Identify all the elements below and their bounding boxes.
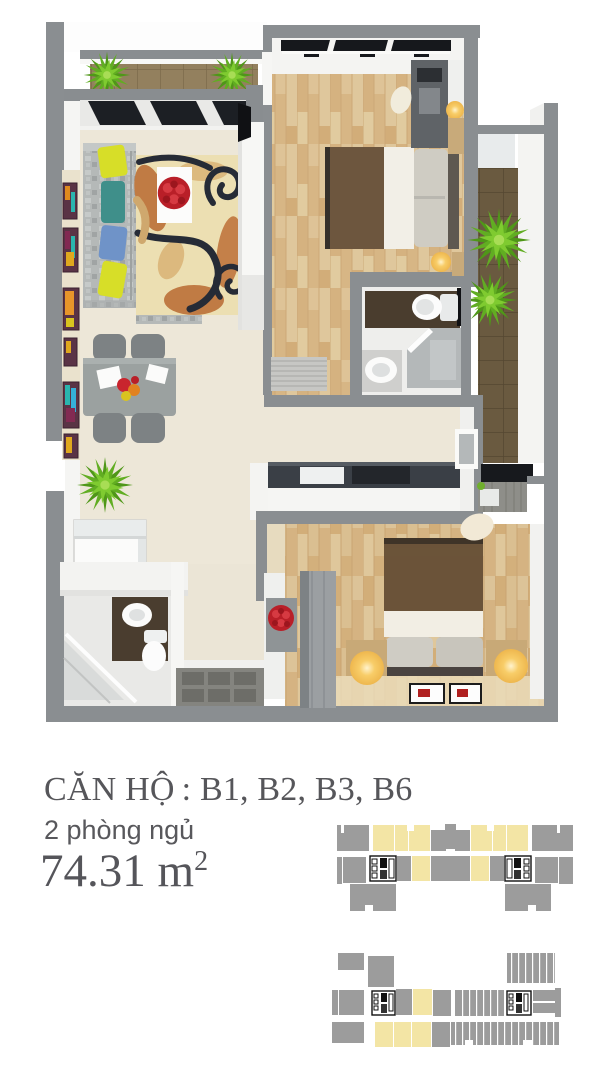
svg-text:CĂN HỘ : B1, B2, B3, B6: CĂN HỘ : B1, B2, B3, B6	[44, 770, 412, 808]
svg-text:74.31 m2: 74.31 m2	[40, 845, 208, 897]
svg-text:2 phòng ngủ: 2 phòng ngủ	[44, 815, 194, 845]
